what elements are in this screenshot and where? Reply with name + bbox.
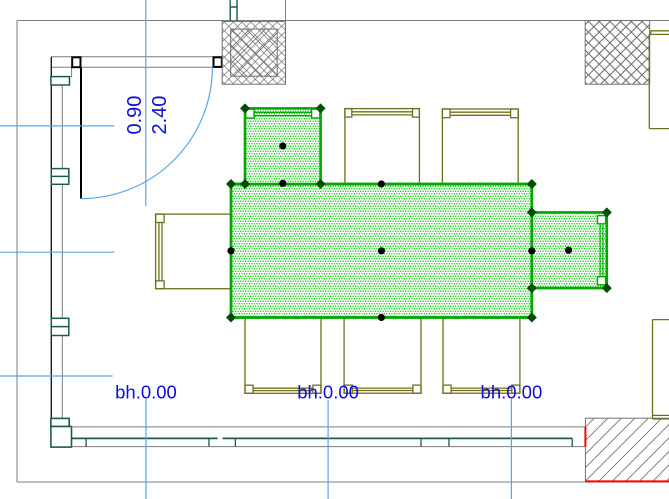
- svg-text:2.40: 2.40: [149, 96, 171, 135]
- svg-text:0.90: 0.90: [124, 96, 146, 135]
- svg-text:bh.0.00: bh.0.00: [115, 381, 177, 402]
- svg-text:bh.0.00: bh.0.00: [297, 381, 359, 402]
- svg-text:bh.0.00: bh.0.00: [481, 381, 543, 402]
